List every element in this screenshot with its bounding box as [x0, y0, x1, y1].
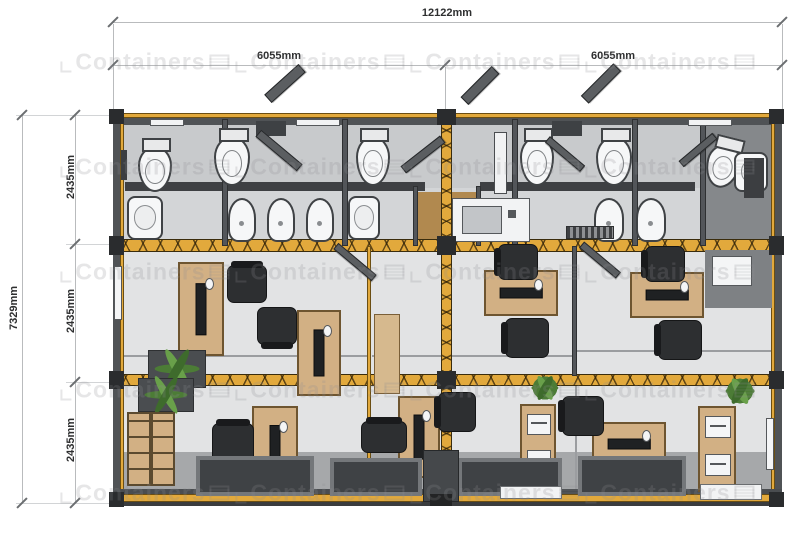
- toilet-tank: [219, 128, 249, 142]
- floor-grate: [566, 226, 614, 239]
- dimension-line-total-depth: [22, 115, 23, 503]
- ledge-3: [688, 119, 732, 126]
- entry-door-step: [430, 494, 452, 506]
- dimension-label-module-3: 2435mm: [65, 400, 77, 480]
- corner-block-tr: [769, 109, 784, 124]
- entry-mat-4: [578, 456, 686, 496]
- watermark-bracket-icon: [60, 390, 71, 401]
- connector-mid-right: [769, 236, 784, 255]
- cabinet-white-tall: [494, 132, 507, 194]
- extension-line: [16, 503, 110, 504]
- entry-mat-2: [330, 458, 422, 496]
- toilet-tank: [360, 128, 389, 142]
- printer-icon: [527, 414, 551, 435]
- printer-icon: [705, 454, 731, 476]
- chair-1: [227, 265, 267, 303]
- plant-center: [528, 372, 562, 404]
- locker-dark: [744, 158, 764, 198]
- dimension-label-module-2: 2435mm: [65, 271, 77, 351]
- desk-2: [297, 310, 341, 396]
- corner-block-br: [769, 492, 784, 507]
- urinal-5: [636, 198, 666, 242]
- window-left-wall: [114, 266, 122, 320]
- door-open-roof-2: [461, 66, 500, 105]
- chair-3: [498, 244, 538, 280]
- connector-top-center: [437, 109, 456, 125]
- cabinet-printer-right: [698, 406, 736, 492]
- door-open-roof-3: [581, 63, 621, 103]
- window-right-wall: [766, 418, 774, 470]
- chair-2: [257, 307, 297, 345]
- chair-5: [645, 246, 685, 282]
- chair-8: [361, 421, 407, 453]
- monitor-icon: [500, 288, 543, 299]
- dimension-label-right-half: 6055mm: [553, 50, 673, 62]
- monitor-icon: [608, 439, 651, 450]
- watermark-container-icon: [385, 55, 405, 70]
- extension-line: [445, 67, 446, 111]
- mirror: [121, 150, 127, 180]
- extension-line: [16, 115, 110, 116]
- urinal-3: [306, 198, 334, 242]
- watermark: Containers: [60, 49, 229, 76]
- watermark-bracket-icon: [60, 493, 71, 504]
- plant-right: [722, 374, 758, 408]
- alcove-window: [712, 256, 752, 286]
- floor-plan-canvas: 12122mm 6055mm 6055mm 7329mm 2435mm 2435…: [0, 0, 800, 533]
- connector-low-left: [109, 371, 124, 389]
- connector-mid-center: [437, 236, 456, 255]
- extension-line: [113, 24, 114, 110]
- dimension-label-module-1: 2435mm: [65, 137, 77, 217]
- vestibule-wall-left: [413, 186, 418, 246]
- extension-line: [782, 24, 783, 110]
- connector-low-center: [437, 371, 456, 389]
- kitchenette-faucet: [508, 210, 516, 218]
- threshold-white-2: [700, 484, 762, 500]
- monitor-icon: [314, 329, 325, 376]
- chair-10: [562, 396, 604, 436]
- watermark-container-icon: [735, 55, 755, 70]
- wall-right: [775, 113, 782, 506]
- ledge-1: [150, 119, 184, 126]
- dimension-label-total-depth: 7329mm: [8, 268, 20, 348]
- planter-bottom-left: [138, 378, 194, 412]
- bookshelf: [127, 412, 175, 486]
- door-open-roof-1: [264, 64, 306, 103]
- urinal-2: [267, 198, 295, 242]
- urinal-1: [228, 198, 256, 242]
- watermark-bracket-icon: [60, 62, 71, 73]
- entry-mat-1: [196, 456, 314, 496]
- dimension-line-left-half: [113, 65, 445, 66]
- watermark-bracket-icon: [585, 62, 596, 73]
- toilet-tank: [142, 138, 171, 152]
- chair-4: [505, 318, 549, 358]
- partition-office-right: [572, 246, 577, 376]
- watermark-bracket-icon: [235, 62, 246, 73]
- printer-icon: [705, 416, 731, 438]
- cabinet-tall-wood: [374, 314, 400, 394]
- joint-post-center: [441, 113, 452, 506]
- skylight-2: [552, 121, 582, 136]
- dimension-line-total-width: [113, 22, 782, 23]
- dimension-label-total-width: 12122mm: [387, 7, 507, 19]
- dimension-label-left-half: 6055mm: [219, 50, 339, 62]
- sink-2: [348, 196, 380, 240]
- ledge-2: [296, 119, 340, 126]
- toilet-tank: [601, 128, 631, 142]
- connector-mid-left: [109, 236, 124, 255]
- sink-1: [127, 196, 163, 240]
- watermark-text: Containers: [75, 49, 205, 76]
- corner-block-bl: [109, 492, 124, 507]
- corner-block-tl: [109, 109, 124, 124]
- chair-6: [658, 320, 702, 360]
- connector-low-right: [769, 371, 784, 389]
- monitor-icon: [196, 283, 207, 335]
- chair-9: [438, 392, 476, 432]
- desk-1: [178, 262, 224, 356]
- kitchenette-sink: [462, 206, 502, 234]
- threshold-white-1: [500, 486, 562, 499]
- watermark-bracket-icon: [410, 62, 421, 73]
- monitor-icon: [646, 290, 689, 301]
